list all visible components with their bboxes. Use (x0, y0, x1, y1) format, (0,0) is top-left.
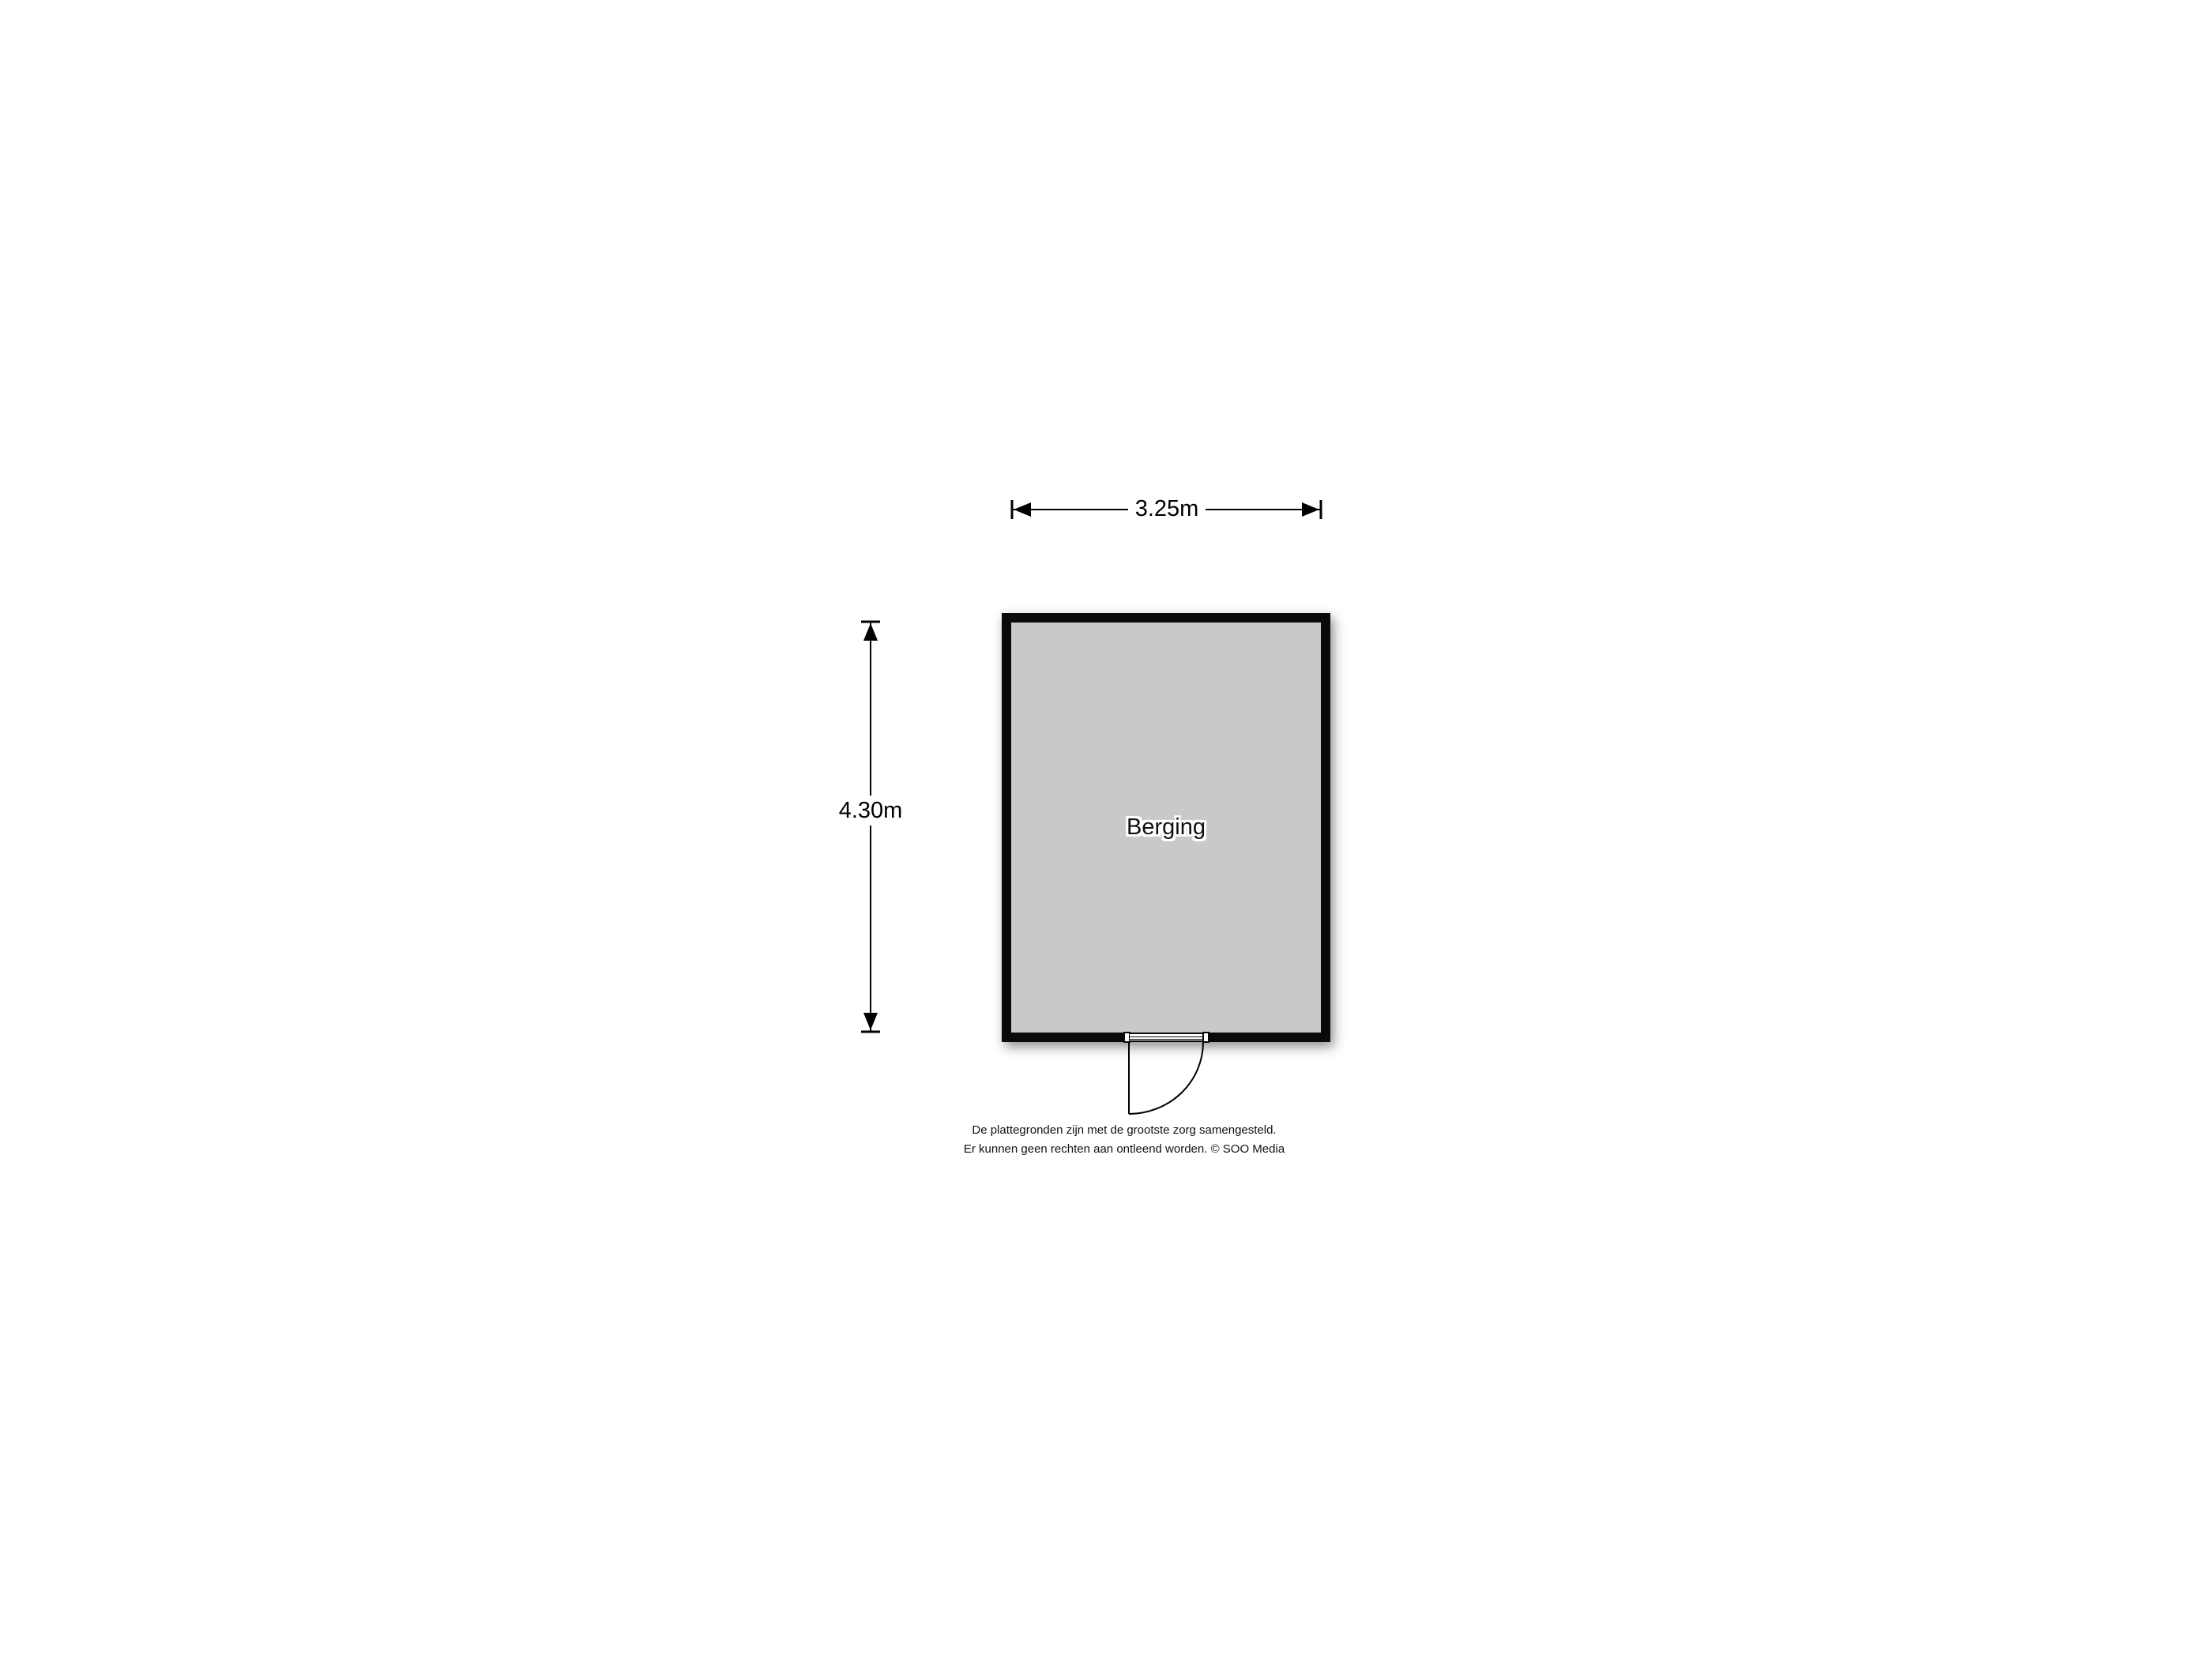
arrowhead-up-icon (863, 623, 878, 641)
width-dimension-label: 3.25m (1128, 494, 1206, 524)
disclaimer-line-1: De plattegronden zijn met de grootste zo… (887, 1121, 1361, 1140)
disclaimer: De plattegronden zijn met de grootste zo… (887, 1121, 1361, 1159)
door-swing-arc (1129, 1042, 1203, 1114)
floorplan-canvas: 3.25m 4.30m Berging De plattegronden zij… (0, 0, 2212, 1659)
arrowhead-down-icon (863, 1013, 878, 1030)
door-swing (1129, 1042, 1203, 1114)
room-name-label: Berging (1002, 812, 1330, 842)
height-dimension-label: 4.30m (832, 796, 910, 826)
disclaimer-line-2: Er kunnen geen rechten aan ontleend word… (887, 1140, 1361, 1159)
door-panel (1130, 1033, 1203, 1042)
arrowhead-right-icon (1302, 502, 1319, 517)
door-panel-line (1130, 1036, 1203, 1037)
door-jamb-right (1202, 1032, 1209, 1043)
door-panel-line (1130, 1039, 1203, 1040)
arrowhead-left-icon (1014, 502, 1031, 517)
width-dimension: 3.25m (1088, 494, 1246, 524)
door-opening (1123, 1033, 1209, 1042)
height-dimension-line (861, 621, 880, 1033)
height-dimension: 4.30m (792, 796, 950, 826)
